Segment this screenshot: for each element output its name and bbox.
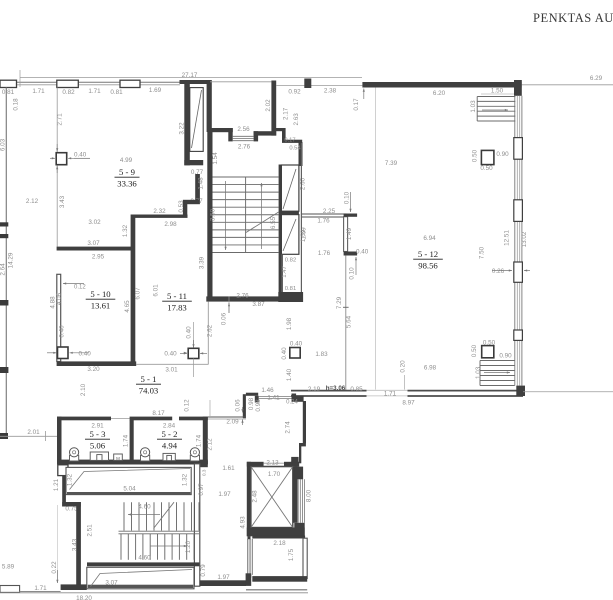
svg-text:0.97: 0.97 [198, 483, 205, 496]
svg-text:0.12: 0.12 [184, 399, 191, 412]
svg-text:7.29: 7.29 [336, 296, 343, 309]
svg-text:1.49: 1.49 [346, 227, 353, 240]
svg-text:0.12: 0.12 [74, 285, 86, 291]
svg-text:6.01: 6.01 [153, 284, 160, 297]
svg-text:0.81: 0.81 [110, 89, 123, 96]
svg-text:0.20: 0.20 [400, 360, 407, 373]
svg-text:1.97: 1.97 [217, 574, 230, 581]
svg-text:1.47: 1.47 [282, 266, 288, 277]
svg-text:2.10: 2.10 [80, 383, 87, 396]
svg-text:0.10: 0.10 [344, 191, 351, 204]
svg-text:1.74: 1.74 [196, 434, 203, 447]
svg-text:1.54: 1.54 [212, 152, 219, 165]
svg-text:3.01: 3.01 [165, 367, 178, 374]
svg-text:3.07: 3.07 [87, 240, 100, 247]
svg-text:6.55: 6.55 [270, 216, 277, 229]
svg-text:12.51: 12.51 [504, 230, 511, 246]
svg-text:18.20: 18.20 [76, 595, 92, 600]
svg-text:2.01: 2.01 [27, 429, 40, 436]
svg-text:0.79: 0.79 [200, 564, 207, 577]
svg-text:2.25: 2.25 [323, 208, 336, 215]
svg-text:2.32: 2.32 [153, 208, 166, 215]
svg-text:0.98: 0.98 [248, 397, 255, 410]
svg-text:2.02: 2.02 [265, 99, 272, 112]
svg-text:5 - 2: 5 - 2 [162, 429, 178, 439]
svg-text:0.17: 0.17 [284, 137, 295, 143]
svg-text:0.40: 0.40 [356, 249, 369, 256]
svg-text:3.20: 3.20 [87, 366, 100, 373]
svg-text:0.18: 0.18 [13, 98, 20, 111]
svg-text:3.43: 3.43 [71, 538, 78, 551]
svg-text:2.12: 2.12 [26, 198, 39, 205]
svg-text:14.29: 14.29 [8, 252, 15, 268]
svg-text:0.50: 0.50 [480, 165, 493, 172]
svg-text:4.65: 4.65 [124, 300, 131, 313]
svg-text:8.97: 8.97 [402, 400, 415, 407]
svg-text:74.03: 74.03 [139, 386, 159, 396]
svg-text:2.56: 2.56 [237, 126, 250, 133]
svg-text:2.98: 2.98 [164, 221, 177, 228]
svg-text:13.02: 13.02 [521, 231, 528, 247]
svg-text:2.19: 2.19 [308, 386, 321, 393]
svg-text:2.95: 2.95 [92, 254, 105, 261]
svg-text:2.62: 2.62 [207, 324, 214, 337]
svg-text:4.06: 4.06 [56, 292, 63, 305]
svg-text:2.48: 2.48 [252, 490, 259, 503]
svg-text:2.64: 2.64 [0, 263, 7, 276]
svg-text:33.36: 33.36 [117, 179, 137, 189]
svg-text:1.75: 1.75 [288, 548, 295, 561]
svg-text:0.40: 0.40 [164, 351, 177, 358]
svg-text:5 - 10: 5 - 10 [90, 289, 111, 299]
svg-text:0.3: 0.3 [202, 469, 207, 476]
svg-text:8.00: 8.00 [306, 489, 313, 502]
svg-text:1.48: 1.48 [197, 177, 204, 190]
svg-text:0.98: 0.98 [255, 399, 262, 412]
svg-text:3.07: 3.07 [105, 580, 118, 587]
svg-text:2.12: 2.12 [206, 438, 213, 451]
svg-text:5 - 11: 5 - 11 [167, 291, 187, 301]
svg-text:0.92: 0.92 [288, 89, 301, 96]
svg-text:3.43: 3.43 [59, 195, 66, 208]
svg-text:0.85: 0.85 [350, 386, 363, 393]
svg-text:2.76: 2.76 [238, 144, 251, 151]
svg-text:5.06: 5.06 [90, 441, 106, 451]
svg-text:1.97: 1.97 [218, 491, 231, 498]
svg-text:2.63: 2.63 [293, 113, 300, 126]
svg-text:0.82: 0.82 [62, 89, 75, 96]
svg-text:0.26: 0.26 [492, 268, 505, 275]
svg-text:0.81: 0.81 [2, 89, 15, 96]
svg-text:1.71: 1.71 [88, 88, 101, 95]
svg-text:2.13: 2.13 [266, 459, 279, 466]
svg-text:0.50: 0.50 [471, 344, 478, 357]
svg-text:1.32: 1.32 [122, 224, 129, 237]
svg-text:1.83: 1.83 [315, 351, 328, 358]
svg-text:1.32: 1.32 [182, 473, 189, 486]
svg-text:1.69: 1.69 [300, 229, 307, 242]
svg-text:1.71: 1.71 [384, 391, 397, 398]
svg-text:5 - 9: 5 - 9 [119, 167, 135, 177]
svg-text:6.03: 6.03 [0, 138, 7, 151]
svg-text:1.41: 1.41 [267, 395, 280, 402]
svg-text:8.17: 8.17 [152, 410, 165, 417]
svg-text:2.91: 2.91 [91, 423, 104, 430]
svg-text:0.82: 0.82 [285, 258, 296, 264]
svg-text:0.24: 0.24 [286, 400, 298, 406]
svg-text:17.83: 17.83 [167, 303, 187, 313]
svg-text:0.06: 0.06 [235, 399, 242, 412]
svg-text:0.40: 0.40 [59, 325, 66, 338]
svg-text:6.98: 6.98 [424, 365, 437, 372]
svg-text:1.21: 1.21 [53, 478, 60, 491]
svg-text:2.18: 2.18 [273, 540, 286, 547]
svg-text:2.76: 2.76 [236, 293, 249, 300]
svg-text:3.02: 3.02 [88, 219, 101, 226]
svg-text:7.50: 7.50 [479, 246, 486, 259]
svg-text:0.50: 0.50 [471, 149, 478, 162]
svg-text:98.56: 98.56 [418, 261, 438, 271]
svg-text:1.71: 1.71 [32, 88, 45, 95]
svg-text:2.17: 2.17 [282, 107, 289, 120]
svg-text:2.84: 2.84 [163, 423, 176, 430]
svg-text:5 - 3: 5 - 3 [90, 429, 106, 439]
svg-text:3.39: 3.39 [199, 256, 206, 269]
svg-text:1.40: 1.40 [286, 368, 293, 381]
svg-text:4.60: 4.60 [138, 555, 151, 562]
svg-text:6.94: 6.94 [423, 235, 436, 242]
svg-text:0.40: 0.40 [290, 340, 303, 347]
svg-text:4.60: 4.60 [138, 504, 151, 511]
svg-text:5 - 1: 5 - 1 [141, 374, 157, 384]
svg-text:1.74: 1.74 [123, 434, 130, 447]
svg-text:2.51: 2.51 [86, 524, 93, 537]
svg-text:1.69: 1.69 [149, 87, 162, 94]
svg-text:3.22: 3.22 [179, 122, 186, 135]
svg-text:6.20: 6.20 [433, 90, 446, 97]
svg-text:1.70: 1.70 [268, 471, 281, 478]
svg-text:0.10: 0.10 [349, 267, 356, 280]
svg-text:6.29: 6.29 [590, 75, 603, 82]
svg-text:4.94: 4.94 [162, 441, 178, 451]
svg-text:1.46: 1.46 [261, 387, 274, 394]
svg-text:4.93: 4.93 [240, 516, 247, 529]
svg-text:PENKTAS AUKŠTAS: PENKTAS AUKŠTAS [533, 11, 613, 25]
svg-text:0.90: 0.90 [496, 151, 509, 158]
svg-text:3.50: 3.50 [209, 208, 216, 221]
svg-text:6.07: 6.07 [135, 287, 142, 300]
svg-text:2.38: 2.38 [324, 88, 337, 95]
svg-text:0.40: 0.40 [79, 351, 92, 358]
svg-text:0.17: 0.17 [353, 98, 360, 111]
svg-text:0.40: 0.40 [281, 347, 288, 360]
svg-text:1.98: 1.98 [286, 317, 293, 330]
svg-text:0.54: 0.54 [289, 145, 301, 151]
svg-text:0.06: 0.06 [221, 312, 228, 325]
svg-text:3.87: 3.87 [252, 301, 265, 308]
svg-text:1.50: 1.50 [491, 88, 504, 95]
svg-text:4.99: 4.99 [120, 157, 133, 164]
svg-text:2.09: 2.09 [226, 419, 239, 426]
svg-text:0.90: 0.90 [499, 353, 512, 360]
svg-text:0.50: 0.50 [483, 339, 496, 346]
svg-text:13.61: 13.61 [91, 301, 111, 311]
svg-text:2.60: 2.60 [300, 177, 307, 190]
svg-text:1.71: 1.71 [34, 585, 47, 592]
svg-text:7.39: 7.39 [385, 160, 398, 167]
svg-text:1.61: 1.61 [222, 465, 235, 472]
svg-text:1.20: 1.20 [185, 540, 192, 553]
svg-text:h=3.06: h=3.06 [326, 385, 346, 392]
svg-text:27.17: 27.17 [182, 72, 198, 79]
svg-text:M: M [116, 456, 120, 461]
svg-text:0.40: 0.40 [186, 326, 193, 339]
svg-text:5.89: 5.89 [2, 564, 15, 571]
svg-text:5 - 12: 5 - 12 [418, 249, 438, 259]
svg-text:1.03: 1.03 [475, 366, 482, 379]
svg-text:0.40: 0.40 [74, 152, 87, 159]
svg-text:5.04: 5.04 [123, 486, 136, 493]
svg-text:1.76: 1.76 [317, 218, 330, 225]
svg-text:5.64: 5.64 [345, 315, 352, 328]
svg-text:0.81: 0.81 [285, 286, 296, 292]
svg-text:1.76: 1.76 [318, 250, 331, 257]
svg-text:2.74: 2.74 [285, 421, 292, 434]
svg-text:1.03: 1.03 [470, 100, 477, 113]
svg-text:1.32: 1.32 [67, 473, 74, 486]
